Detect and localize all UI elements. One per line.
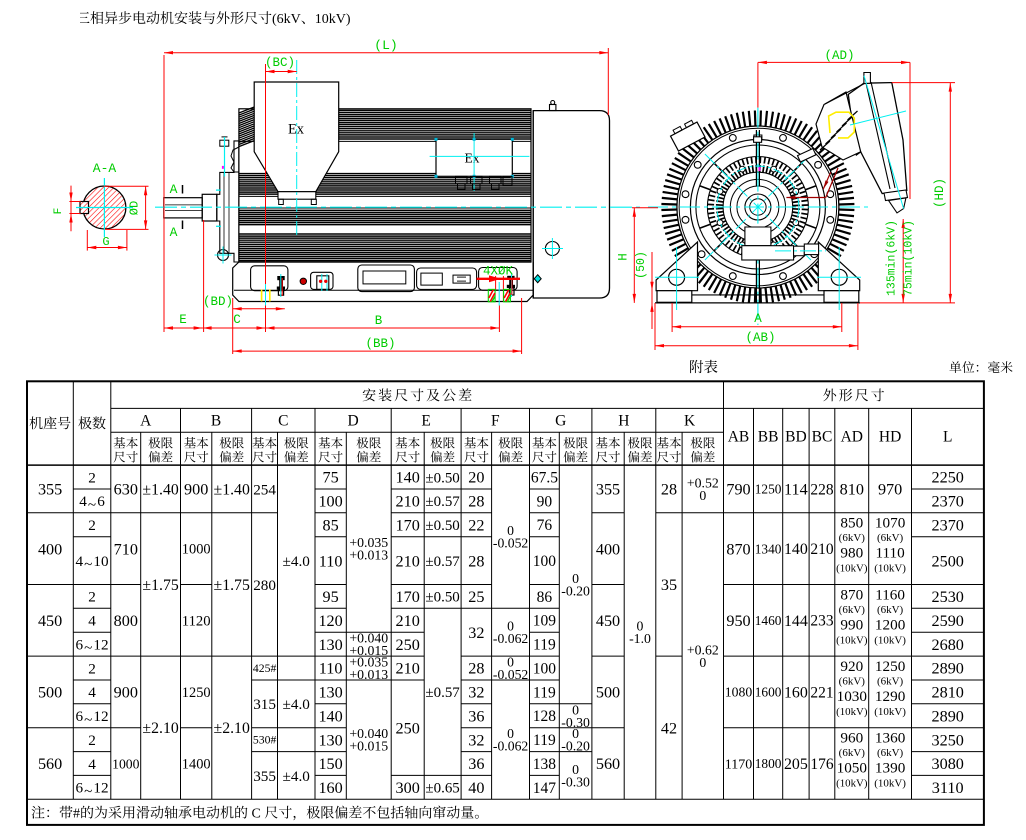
svg-text:±2.10: ±2.10 <box>142 720 178 737</box>
svg-text:2680: 2680 <box>932 636 964 654</box>
svg-text:±0.57: ±0.57 <box>425 554 460 570</box>
svg-text:990: 990 <box>840 616 863 633</box>
svg-text:(6kV): (6kV) <box>877 532 904 544</box>
svg-text:140: 140 <box>318 707 342 725</box>
svg-text:530#: 530# <box>253 734 277 747</box>
svg-text:32: 32 <box>468 731 484 749</box>
svg-text:ØD: ØD <box>128 201 142 215</box>
svg-text:205: 205 <box>784 756 808 773</box>
svg-text:790: 790 <box>726 481 750 499</box>
svg-text:233: 233 <box>810 613 833 630</box>
svg-text:210: 210 <box>396 612 420 630</box>
svg-text:±0.50: ±0.50 <box>425 518 459 534</box>
svg-text:A: A <box>140 413 152 430</box>
svg-text:1600: 1600 <box>755 685 782 700</box>
svg-text:±4.0: ±4.0 <box>283 696 311 713</box>
svg-text:(10kV): (10kV) <box>836 563 868 575</box>
svg-text:1080: 1080 <box>725 685 753 700</box>
svg-text:10kV): 10kV) <box>315 12 351 27</box>
svg-text:(BC): (BC) <box>265 56 295 70</box>
svg-text:500: 500 <box>38 684 62 702</box>
svg-text:(6kV): (6kV) <box>839 532 866 544</box>
svg-text:10: 10 <box>93 553 109 570</box>
svg-text:+0.013: +0.013 <box>349 667 388 682</box>
svg-text:22: 22 <box>468 517 484 535</box>
svg-text:250: 250 <box>396 636 420 654</box>
svg-text:D: D <box>347 413 358 430</box>
svg-text:210: 210 <box>396 493 420 511</box>
svg-text:280: 280 <box>253 577 276 594</box>
svg-text:119: 119 <box>533 732 556 749</box>
svg-text:355: 355 <box>253 768 276 785</box>
svg-text:870: 870 <box>840 586 863 603</box>
svg-text:150: 150 <box>318 755 342 773</box>
svg-text:130: 130 <box>318 731 342 749</box>
svg-text:-0.30: -0.30 <box>561 774 590 789</box>
svg-text:1170: 1170 <box>725 757 752 772</box>
svg-text:400: 400 <box>38 540 62 558</box>
svg-text:560: 560 <box>38 755 62 773</box>
svg-text:2: 2 <box>88 732 96 749</box>
svg-text:315: 315 <box>253 696 276 713</box>
svg-text:2500: 2500 <box>932 552 964 570</box>
svg-text:900: 900 <box>114 684 138 702</box>
svg-text:L: L <box>943 429 952 446</box>
svg-text:170: 170 <box>396 588 420 606</box>
svg-text:(10kV): (10kV) <box>874 634 906 646</box>
svg-text:250: 250 <box>396 719 420 737</box>
svg-text:2590: 2590 <box>932 612 964 630</box>
svg-text:2: 2 <box>88 517 96 534</box>
svg-text:±0.50: ±0.50 <box>425 470 459 486</box>
svg-text:630: 630 <box>114 481 138 499</box>
svg-text:(10kV): (10kV) <box>836 706 868 718</box>
svg-text:F: F <box>491 413 500 430</box>
svg-text:(10kV): (10kV) <box>874 706 906 718</box>
svg-text:#: # <box>73 807 80 822</box>
svg-text:(HD): (HD) <box>933 178 947 208</box>
svg-text:(BB): (BB) <box>365 337 395 351</box>
svg-text:100: 100 <box>533 553 557 570</box>
svg-text:E: E <box>421 413 430 430</box>
svg-text:C: C <box>278 413 288 430</box>
svg-text:28: 28 <box>661 481 677 499</box>
svg-text:G: G <box>555 413 566 430</box>
svg-text:-0.20: -0.20 <box>561 739 590 754</box>
svg-text:110: 110 <box>319 552 343 570</box>
svg-text:128: 128 <box>533 708 557 725</box>
svg-text:90: 90 <box>537 493 553 510</box>
svg-text:1290: 1290 <box>875 688 906 705</box>
svg-text:130: 130 <box>318 684 342 702</box>
svg-text:114: 114 <box>784 481 808 499</box>
svg-text:1120: 1120 <box>182 613 211 629</box>
svg-text:130: 130 <box>318 636 342 654</box>
svg-text:3080: 3080 <box>932 755 964 773</box>
svg-text:210: 210 <box>810 541 833 558</box>
svg-text:BD: BD <box>785 429 807 446</box>
svg-text:25: 25 <box>468 588 484 606</box>
svg-text:28: 28 <box>468 552 484 570</box>
svg-text:2: 2 <box>88 469 96 486</box>
svg-text:A: A <box>170 225 178 240</box>
svg-text:1200: 1200 <box>875 616 906 633</box>
svg-text:±4.0: ±4.0 <box>283 553 311 570</box>
svg-text:±0.57: ±0.57 <box>425 685 460 701</box>
svg-text:B: B <box>211 413 221 430</box>
svg-text:425#: 425# <box>253 662 277 675</box>
svg-text:2370: 2370 <box>932 493 964 511</box>
svg-text:28: 28 <box>468 493 484 511</box>
svg-text:4: 4 <box>76 553 84 570</box>
svg-text:(10kV): (10kV) <box>874 778 906 790</box>
svg-text:254: 254 <box>253 481 276 498</box>
svg-text:(6kV): (6kV) <box>839 747 866 759</box>
svg-text:H: H <box>617 253 631 261</box>
svg-text:BC: BC <box>812 429 833 446</box>
svg-text:6: 6 <box>97 493 105 510</box>
svg-text:(BD): (BD) <box>203 295 233 309</box>
svg-text:~: ~ <box>84 711 92 728</box>
svg-text:HD: HD <box>879 429 901 446</box>
svg-text:BB: BB <box>758 429 779 446</box>
svg-text:100: 100 <box>533 660 557 677</box>
svg-text:355: 355 <box>38 481 62 499</box>
svg-text:800: 800 <box>114 612 138 630</box>
svg-text:(6kV: (6kV <box>272 12 301 27</box>
svg-text:810: 810 <box>840 481 864 499</box>
svg-text:12: 12 <box>93 780 108 797</box>
svg-text:500: 500 <box>596 684 620 702</box>
svg-text:86: 86 <box>537 589 553 606</box>
svg-text:2: 2 <box>88 660 96 677</box>
svg-text:-1.0: -1.0 <box>629 631 651 646</box>
svg-text:4: 4 <box>79 493 87 510</box>
svg-text:H: H <box>618 413 629 430</box>
svg-text:710: 710 <box>114 540 138 558</box>
svg-text:~: ~ <box>84 640 92 657</box>
svg-text:4XØK: 4XØK <box>483 265 514 279</box>
svg-text:75min(10kV): 75min(10kV) <box>903 220 916 296</box>
svg-text:(10kV): (10kV) <box>836 634 868 646</box>
svg-text:0: 0 <box>699 488 706 503</box>
svg-text:2890: 2890 <box>932 660 964 678</box>
svg-text:1250: 1250 <box>182 685 211 701</box>
svg-text:400: 400 <box>596 540 620 558</box>
svg-text:F: F <box>53 208 65 215</box>
svg-text:±1.40: ±1.40 <box>142 482 178 499</box>
svg-text:AD: AD <box>841 429 863 446</box>
svg-text:1460: 1460 <box>755 613 782 628</box>
svg-text:±2.10: ±2.10 <box>214 720 250 737</box>
svg-text:AB: AB <box>728 429 750 446</box>
svg-text:450: 450 <box>38 612 62 630</box>
svg-text:G: G <box>102 235 109 249</box>
svg-text:±1.75: ±1.75 <box>142 577 178 594</box>
svg-text:2250: 2250 <box>932 469 964 487</box>
svg-text:0: 0 <box>699 655 706 670</box>
svg-text:(10kV): (10kV) <box>836 778 868 790</box>
svg-text:1110: 1110 <box>875 545 905 562</box>
svg-text:E: E <box>179 313 187 327</box>
svg-text:6: 6 <box>76 637 84 654</box>
svg-text:(6kV): (6kV) <box>839 675 866 687</box>
svg-text:-0.052: -0.052 <box>493 667 529 682</box>
svg-text:110: 110 <box>319 660 343 678</box>
svg-text:950: 950 <box>726 612 750 630</box>
svg-text:170: 170 <box>396 517 420 535</box>
svg-text:A: A <box>754 312 762 326</box>
svg-text:1070: 1070 <box>875 515 906 532</box>
svg-text:±1.75: ±1.75 <box>214 577 250 594</box>
svg-text:210: 210 <box>396 552 420 570</box>
svg-text:160: 160 <box>784 685 808 702</box>
svg-text:(50): (50) <box>635 251 648 279</box>
svg-text:±4.0: ±4.0 <box>283 768 311 785</box>
svg-text:980: 980 <box>840 545 863 562</box>
svg-text:(6kV): (6kV) <box>877 747 904 759</box>
svg-text:K: K <box>684 413 696 430</box>
svg-text:355: 355 <box>596 481 620 499</box>
svg-text:147: 147 <box>533 780 557 797</box>
svg-text:(AD): (AD) <box>824 49 854 63</box>
svg-text:100: 100 <box>318 493 342 511</box>
svg-text:138: 138 <box>533 756 557 773</box>
svg-text:4: 4 <box>88 684 96 701</box>
svg-text:870: 870 <box>726 540 750 558</box>
svg-text:1340: 1340 <box>755 541 782 556</box>
svg-text:144: 144 <box>784 613 808 630</box>
svg-text:210: 210 <box>396 660 420 678</box>
svg-text:+0.013: +0.013 <box>349 548 388 563</box>
svg-text:(6kV): (6kV) <box>877 604 904 616</box>
svg-text:±0.65: ±0.65 <box>425 781 459 797</box>
svg-text:4: 4 <box>88 756 96 773</box>
svg-text:1390: 1390 <box>875 760 906 777</box>
svg-text:±0.50: ±0.50 <box>425 590 459 606</box>
svg-text:140: 140 <box>784 541 808 558</box>
svg-text:75: 75 <box>323 469 339 487</box>
svg-text:1050: 1050 <box>837 760 868 777</box>
svg-text:3110: 3110 <box>932 779 964 797</box>
svg-text:2530: 2530 <box>932 588 964 606</box>
svg-text:3250: 3250 <box>932 731 964 749</box>
svg-text:119: 119 <box>533 637 556 654</box>
svg-text:32: 32 <box>468 624 484 642</box>
svg-text:135min(6kV): 135min(6kV) <box>886 220 899 296</box>
svg-text:12: 12 <box>93 637 108 654</box>
svg-text:2370: 2370 <box>932 517 964 535</box>
svg-text:(L): (L) <box>374 38 397 53</box>
svg-text:140: 140 <box>396 469 420 487</box>
svg-text:450: 450 <box>596 612 620 630</box>
svg-text:+0.015: +0.015 <box>349 739 388 754</box>
svg-text:-0.062: -0.062 <box>493 739 529 754</box>
svg-text:970: 970 <box>878 481 902 499</box>
svg-text:~: ~ <box>84 783 92 800</box>
svg-text:176: 176 <box>810 756 833 773</box>
svg-text:~: ~ <box>84 556 92 573</box>
svg-text:Ex: Ex <box>465 151 480 166</box>
svg-text:1000: 1000 <box>112 756 140 771</box>
svg-text:920: 920 <box>840 658 863 675</box>
svg-text:-0.052: -0.052 <box>493 536 529 551</box>
svg-text:2890: 2890 <box>932 707 964 725</box>
svg-text:1360: 1360 <box>875 730 906 747</box>
svg-text:B: B <box>375 314 383 328</box>
svg-text:C: C <box>233 313 241 327</box>
svg-text:28: 28 <box>468 660 484 678</box>
svg-text:~: ~ <box>88 496 96 513</box>
svg-text:36: 36 <box>468 707 484 725</box>
svg-text:35: 35 <box>661 576 677 594</box>
svg-text:67.5: 67.5 <box>531 470 558 487</box>
svg-text:6: 6 <box>76 708 84 725</box>
svg-text:A: A <box>170 182 178 197</box>
svg-text:6: 6 <box>76 780 84 797</box>
svg-text:228: 228 <box>810 481 833 498</box>
svg-text:560: 560 <box>596 755 620 773</box>
svg-text:(AB): (AB) <box>745 331 775 345</box>
svg-text:2: 2 <box>88 589 96 606</box>
svg-text:(10kV): (10kV) <box>874 563 906 575</box>
svg-text:-0.20: -0.20 <box>561 584 590 599</box>
svg-text:960: 960 <box>840 730 863 747</box>
svg-text:1400: 1400 <box>182 757 211 773</box>
svg-text:850: 850 <box>840 515 863 532</box>
svg-text:42: 42 <box>661 719 677 737</box>
svg-text:76: 76 <box>537 517 553 534</box>
svg-text:(6kV): (6kV) <box>839 604 866 616</box>
svg-text:-0.062: -0.062 <box>493 631 529 646</box>
svg-text:1800: 1800 <box>755 756 782 771</box>
svg-text:40: 40 <box>468 779 484 797</box>
svg-text:C: C <box>248 807 264 822</box>
svg-text:(6kV): (6kV) <box>877 675 904 687</box>
svg-text:32: 32 <box>468 684 484 702</box>
svg-text:±0.57: ±0.57 <box>425 494 460 510</box>
svg-text:160: 160 <box>318 779 342 797</box>
svg-text:109: 109 <box>533 613 557 630</box>
svg-text:A-A: A-A <box>93 161 117 176</box>
svg-text:221: 221 <box>810 684 833 701</box>
svg-text:1250: 1250 <box>875 658 906 675</box>
svg-text:119: 119 <box>533 684 556 701</box>
svg-text:1250: 1250 <box>755 482 782 497</box>
svg-text:95: 95 <box>323 588 339 606</box>
svg-text:900: 900 <box>184 481 208 499</box>
svg-text:85: 85 <box>323 517 339 535</box>
svg-text:1160: 1160 <box>875 586 905 603</box>
svg-text:36: 36 <box>468 755 484 773</box>
svg-text:2810: 2810 <box>932 684 964 702</box>
svg-text:±1.40: ±1.40 <box>214 482 250 499</box>
svg-text:120: 120 <box>318 612 342 630</box>
svg-text:300: 300 <box>396 779 420 797</box>
svg-text:12: 12 <box>93 708 108 725</box>
svg-text:1030: 1030 <box>837 688 868 705</box>
svg-text:20: 20 <box>468 469 484 487</box>
svg-text:4: 4 <box>88 613 96 630</box>
svg-text:1000: 1000 <box>182 542 211 558</box>
